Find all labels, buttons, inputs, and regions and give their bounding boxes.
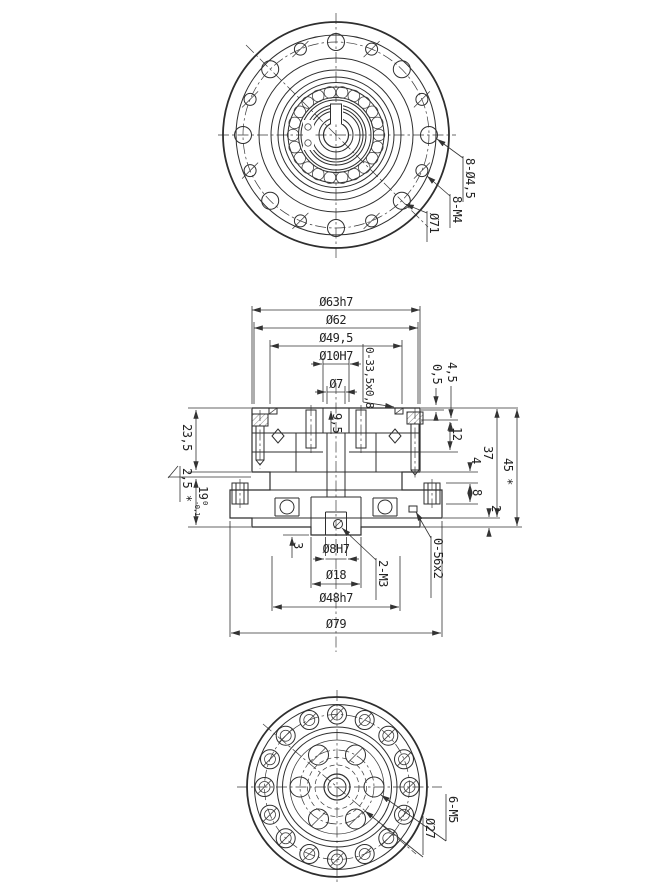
label-clearance-holes: 8-Ø4,5 (463, 158, 477, 199)
dim-dia18: Ø18 (326, 568, 346, 582)
dim-dia79: Ø79 (326, 617, 346, 631)
bottom-view-centerlines (237, 690, 442, 883)
dim-4: 4 (469, 457, 483, 464)
dim-0-5: 0,5 (430, 364, 444, 384)
top-view: 8-Ø4,5 8-M4 Ø71 (218, 13, 477, 258)
label-bolt-circle: Ø71 (427, 213, 441, 233)
dims-bottom: 3 Ø8H7 Ø18 Ø48h7 Ø79 2-M3 0-56x2 (230, 512, 445, 637)
label-tapped-holes: 8-M4 (450, 196, 464, 223)
top-view-leaders: 8-Ø4,5 8-M4 Ø71 (405, 139, 477, 242)
label-oring-top: 0-33,5x0,8 (363, 347, 376, 408)
dim-23-5: 23,5 (180, 424, 194, 451)
dim-8: 8 (470, 489, 484, 496)
dim-dia49-5: Ø49,5 (319, 331, 353, 345)
label-tapped-holes-bottom: 6-M5 (446, 796, 460, 823)
dim-19-tol: 19 0 -0,1 (193, 486, 210, 516)
dim-dia48h7: Ø48h7 (319, 591, 353, 605)
dim-dia10H7: Ø10H7 (319, 349, 353, 363)
dims-left: 23,5 2,5 * 19 0 -0,1 (168, 408, 251, 527)
cross-roller (389, 429, 401, 443)
label-oring-bottom: 0-56x2 (431, 538, 445, 579)
dims-right: 0,5 4,5 12 37 45 * 4 8 2 (408, 362, 522, 536)
dim-2: 2 (489, 505, 503, 512)
label-bolt-circle-bottom: Ø27 (423, 818, 437, 838)
dim-dia8H7: Ø8H7 (323, 542, 350, 556)
dim-2-5: 2,5 * (180, 468, 194, 502)
bottom-view: 6-M5 Ø27 (237, 690, 460, 883)
dim-3: 3 (291, 542, 305, 549)
section-view: Ø63h7 Ø62 Ø49,5 Ø10H7 Ø7 9,5 0-33,5x0,8 … (168, 295, 522, 652)
dim-19: 19 (196, 486, 210, 500)
dim-12: 12 (450, 427, 464, 441)
dim-19-tol-upper: 0 (201, 501, 209, 505)
bottom-view-leaders: 6-M5 Ø27 (365, 794, 460, 857)
dim-dia63h7: Ø63h7 (319, 295, 353, 309)
dim-dia62: Ø62 (326, 313, 346, 327)
dim-19-tol-lower: -0,1 (193, 501, 201, 516)
dim-depth9-5: 9,5 (330, 413, 344, 433)
dim-45: 45 * (501, 458, 515, 485)
dim-dia7: Ø7 (329, 377, 343, 391)
label-2-M3: 2-M3 (376, 560, 390, 587)
technical-drawing: 8-Ø4,5 8-M4 Ø71 (0, 0, 662, 883)
dim-4-5: 4,5 (445, 362, 459, 382)
cross-roller (272, 429, 284, 443)
